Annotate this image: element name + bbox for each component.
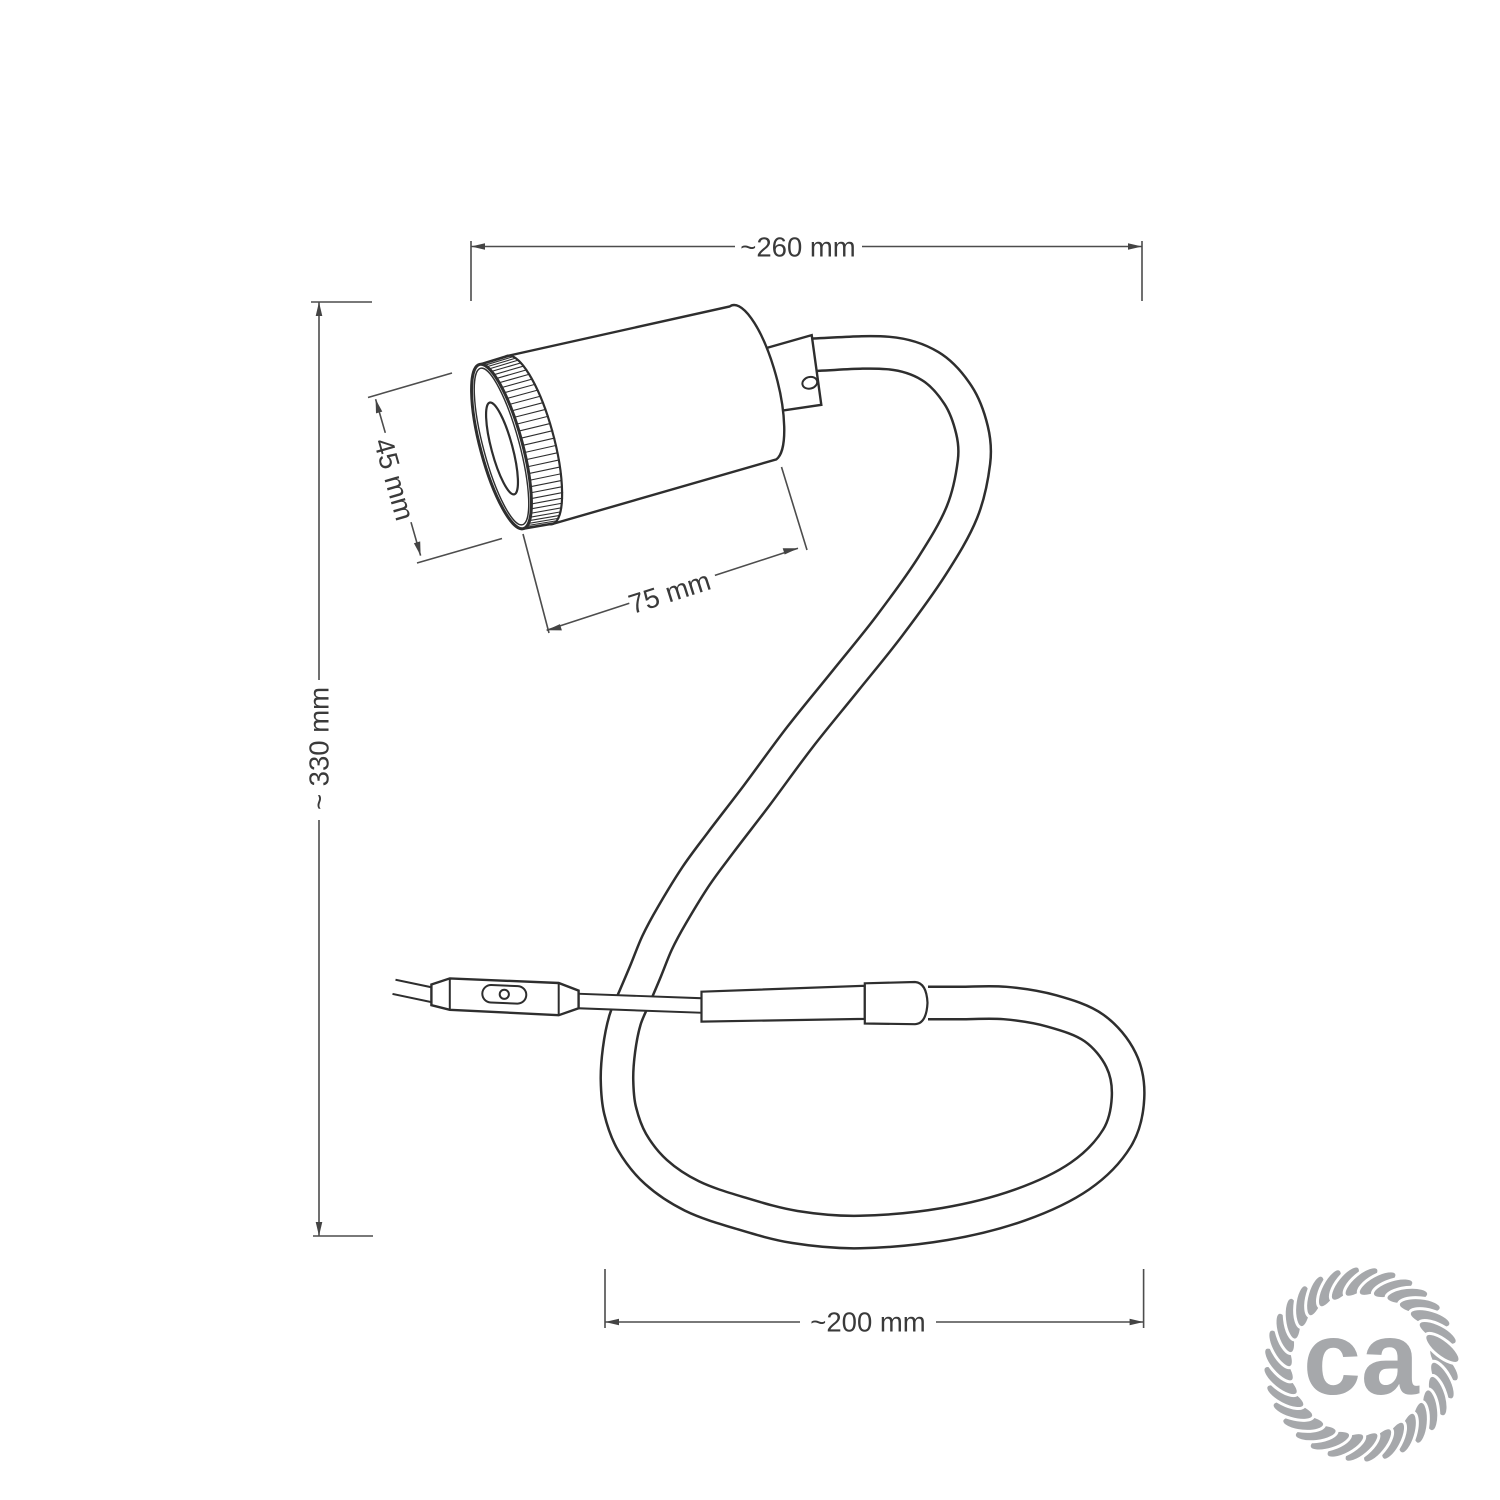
svg-text:~200 mm: ~200 mm [810, 1307, 925, 1338]
svg-text:~260 mm: ~260 mm [740, 232, 855, 263]
svg-text:~ 330 mm: ~ 330 mm [304, 687, 335, 810]
svg-text:ca: ca [1303, 1301, 1420, 1417]
